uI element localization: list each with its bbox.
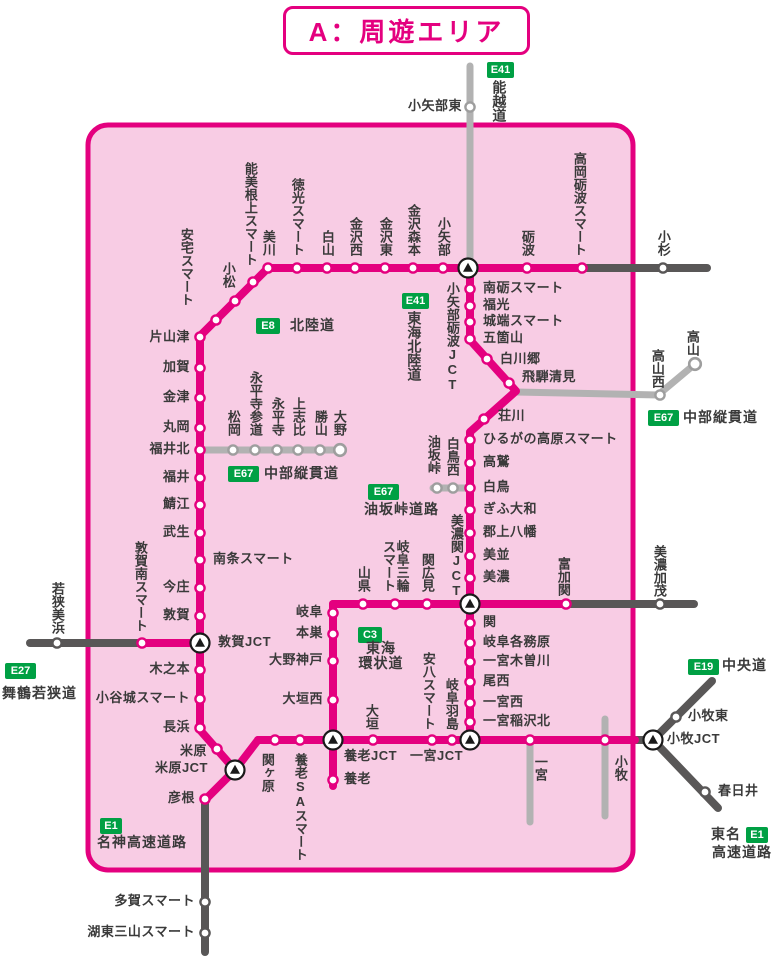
station-label: 長浜 bbox=[163, 720, 190, 734]
page-title: A：周遊エリア bbox=[283, 6, 530, 55]
station-label: 高岡砺波スマート bbox=[572, 152, 586, 256]
station-label: 彦根 bbox=[168, 791, 195, 805]
station-label: 高山 bbox=[685, 330, 699, 356]
station-label: 小矢部 bbox=[436, 217, 450, 256]
jct-label: 美濃関JCT bbox=[449, 514, 463, 598]
route-badge: E67 bbox=[368, 484, 399, 500]
road-label: 東海北陸道 bbox=[407, 311, 422, 381]
station-label: 安八スマート bbox=[421, 652, 435, 730]
jct-label: 米原JCT bbox=[155, 761, 208, 775]
station-label: 油坂峠 bbox=[426, 435, 440, 474]
route-badge: E41 bbox=[402, 293, 429, 309]
station-label: 金沢森本 bbox=[406, 204, 420, 256]
station-label: 上志比 bbox=[291, 397, 305, 436]
station-label: 一宮西 bbox=[483, 695, 524, 709]
station-label: 加賀 bbox=[163, 360, 190, 374]
station-label: 大垣西 bbox=[282, 692, 323, 706]
station-label: 金沢西 bbox=[348, 217, 362, 256]
station-label: 白鳥 bbox=[483, 480, 510, 494]
station-label: 小牧東 bbox=[688, 709, 729, 723]
route-badge: E27 bbox=[5, 663, 36, 679]
station-label: 本巣 bbox=[296, 626, 323, 640]
road-label: 東海 環状道 bbox=[359, 641, 404, 672]
jct-label: 小牧JCT bbox=[667, 732, 720, 746]
route-badge: E1 bbox=[746, 827, 768, 843]
road-label: 中部縦貫道 bbox=[683, 410, 758, 425]
station-label: 一宮 bbox=[533, 755, 547, 781]
station-label: 砺波 bbox=[520, 230, 534, 256]
station-label: ひるがの高原スマート bbox=[483, 432, 618, 446]
station-label: 小牧 bbox=[613, 755, 627, 781]
station-label: 美並 bbox=[483, 548, 510, 562]
station-label: 養老 bbox=[344, 772, 371, 786]
station-label: 勝山 bbox=[313, 410, 327, 436]
station-label: 金津 bbox=[163, 390, 190, 404]
station-label: 湖東三山スマート bbox=[87, 925, 195, 939]
station-label: 荘川 bbox=[498, 409, 525, 423]
road-label: 北陸道 bbox=[290, 318, 335, 333]
station-label: 敦賀南スマート bbox=[133, 541, 147, 632]
station-label: 白鳥西 bbox=[445, 437, 459, 476]
station-label: 小谷城スマート bbox=[96, 691, 190, 705]
station-label: ぎふ大和 bbox=[483, 502, 537, 516]
station-label: 関広見 bbox=[420, 553, 434, 592]
station-label: 山県 bbox=[356, 566, 370, 592]
station-label: 大垣 bbox=[364, 704, 378, 730]
station-label: 小矢部東 bbox=[408, 99, 462, 113]
jct-label: 敦賀JCT bbox=[218, 635, 271, 649]
station-label: 永平寺 bbox=[270, 397, 284, 436]
station-label: 関 bbox=[483, 615, 497, 629]
station-label: 五箇山 bbox=[483, 331, 524, 345]
route-badge: E8 bbox=[256, 318, 280, 334]
jct-label: 養老JCT bbox=[344, 749, 397, 763]
station-label: 福光 bbox=[483, 298, 510, 312]
station-label: 金沢東 bbox=[378, 217, 392, 256]
station-label: 南砺スマート bbox=[483, 281, 564, 295]
road-label: 高速道路 bbox=[712, 845, 772, 860]
station-label: 飛騨清見 bbox=[522, 370, 576, 384]
station-label: 今庄 bbox=[163, 580, 190, 594]
station-label: 春日井 bbox=[718, 784, 759, 798]
station-label: 武生 bbox=[163, 525, 190, 539]
station-label: 大野神戸 bbox=[269, 653, 323, 667]
station-label: 一宮木曽川 bbox=[483, 654, 551, 668]
station-label: 美川 bbox=[261, 230, 275, 256]
station-label: 岐阜三輪 スマート bbox=[381, 540, 408, 592]
route-badge: E67 bbox=[228, 466, 259, 482]
station-label: 若狭美浜 bbox=[50, 582, 64, 634]
station-label: 美濃 bbox=[483, 570, 510, 584]
station-label: 郡上八幡 bbox=[483, 525, 537, 539]
road-label: 能越道 bbox=[492, 80, 507, 122]
station-label: 岐阜 bbox=[296, 605, 323, 619]
station-label: 敦賀 bbox=[163, 608, 190, 622]
route-badge: E1 bbox=[100, 818, 122, 834]
station-label: 城端スマート bbox=[483, 314, 564, 328]
station-label: 高山西 bbox=[650, 349, 664, 388]
road-label: 名神高速道路 bbox=[97, 835, 187, 850]
station-label: 片山津 bbox=[149, 330, 190, 344]
station-label: 美濃加茂 bbox=[652, 545, 666, 597]
station-label: 木之本 bbox=[149, 662, 190, 676]
jct-label: 小矢部砺波JCT bbox=[445, 282, 459, 392]
route-badge: E67 bbox=[648, 410, 679, 426]
station-label: 大野 bbox=[332, 410, 346, 436]
station-label: 小杉 bbox=[656, 230, 670, 256]
station-label: 養老SAスマート bbox=[293, 753, 307, 861]
station-label: 安宅スマート bbox=[179, 228, 193, 306]
station-label: 尾西 bbox=[483, 674, 510, 688]
road-label: 中央道 bbox=[722, 658, 767, 673]
station-label: 小松 bbox=[221, 262, 235, 288]
station-label: 丸岡 bbox=[163, 420, 190, 434]
road-label: 東名 bbox=[711, 827, 741, 842]
station-label: 永平寺参道 bbox=[248, 371, 262, 436]
station-label: 高鷲 bbox=[483, 455, 510, 469]
station-label: 白川郷 bbox=[500, 352, 541, 366]
station-label: 徳光スマート bbox=[290, 178, 304, 256]
road-label: 中部縦貫道 bbox=[264, 466, 339, 481]
station-label: 岐阜各務原 bbox=[483, 635, 551, 649]
station-label: 福井 bbox=[163, 470, 190, 484]
station-label: 多賀スマート bbox=[114, 894, 195, 908]
station-label: 白山 bbox=[320, 230, 334, 256]
station-label: 米原 bbox=[180, 744, 207, 758]
map-labels: A：周遊エリア 美川徳光スマート白山金沢西金沢東金沢森本小矢部砺波高岡砺波スマー… bbox=[0, 0, 773, 960]
station-label: 関ヶ原 bbox=[260, 753, 274, 792]
station-label: 松岡 bbox=[226, 410, 240, 436]
route-badge: E19 bbox=[688, 659, 719, 675]
station-label: 一宮稲沢北 bbox=[483, 714, 551, 728]
jct-label: 一宮JCT bbox=[410, 749, 463, 763]
road-label: 油坂峠道路 bbox=[364, 502, 439, 517]
station-label: 能美根上スマート bbox=[243, 162, 257, 266]
station-label: 岐阜羽島 bbox=[444, 678, 458, 730]
road-label: 舞鶴若狭道 bbox=[2, 686, 77, 701]
tour-area-map: A：周遊エリア 美川徳光スマート白山金沢西金沢東金沢森本小矢部砺波高岡砺波スマー… bbox=[0, 0, 773, 960]
station-label: 南条スマート bbox=[213, 552, 294, 566]
station-label: 福井北 bbox=[149, 442, 190, 456]
route-badge: E41 bbox=[487, 62, 514, 78]
station-label: 鯖江 bbox=[163, 497, 190, 511]
station-label: 富加関 bbox=[556, 557, 570, 596]
